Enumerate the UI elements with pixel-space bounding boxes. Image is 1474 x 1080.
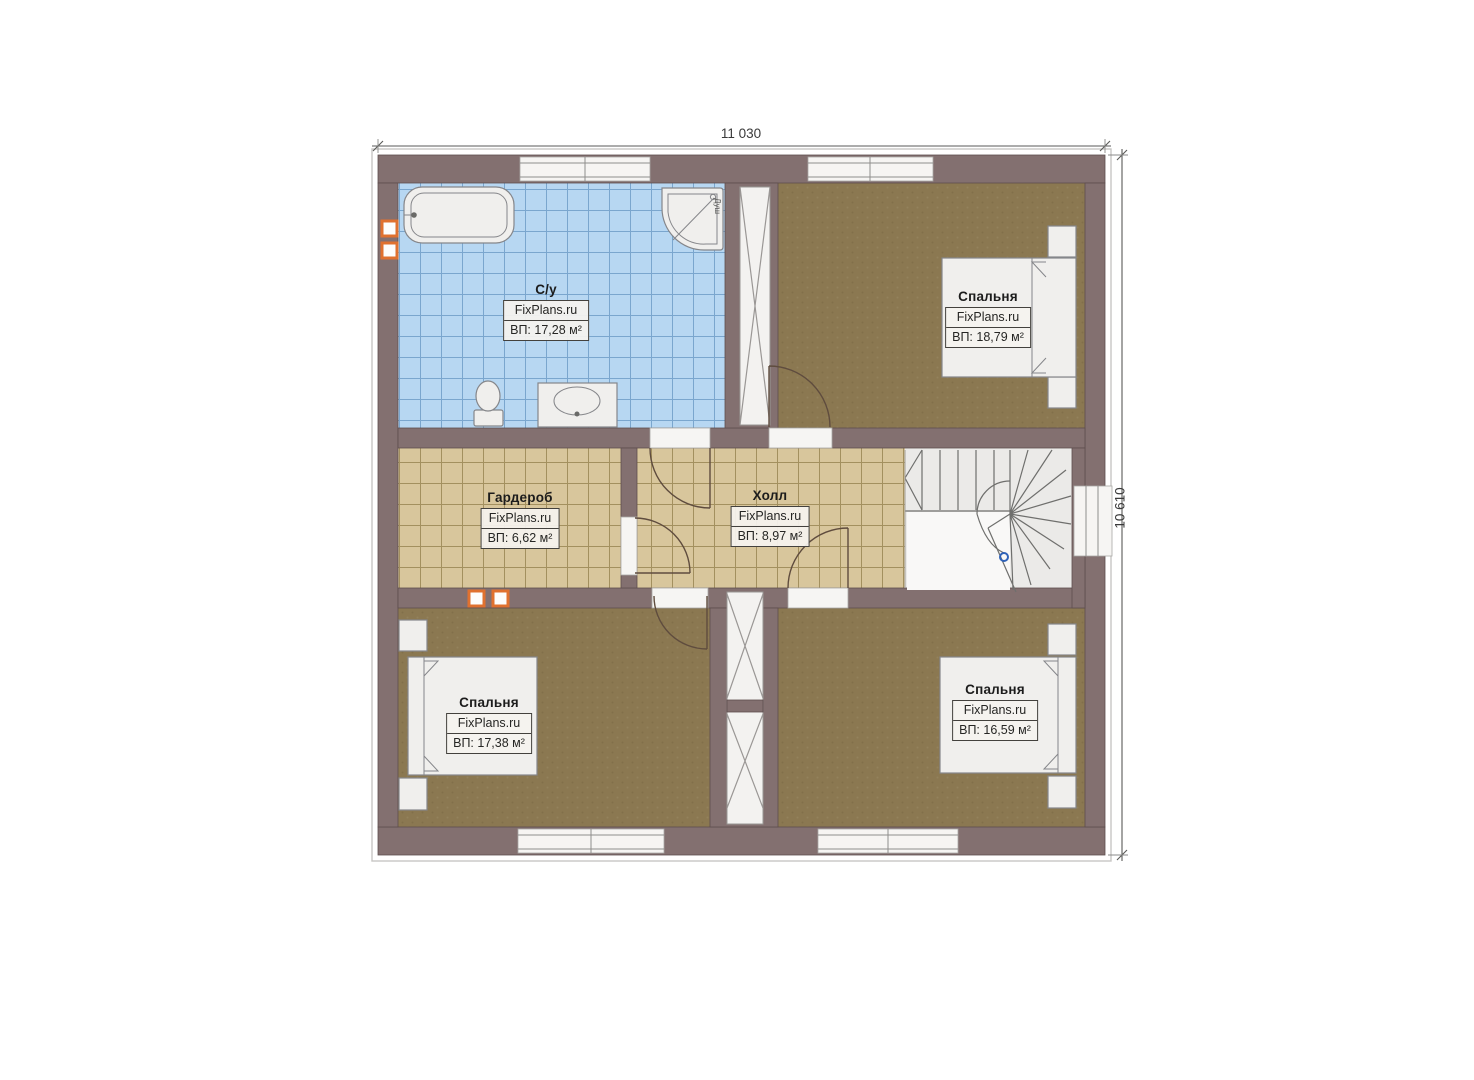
room-label-hall: Холл FixPlans.ru ВП: 8,97 м² [731, 488, 810, 547]
wall-left [378, 183, 398, 827]
room-info-box: FixPlans.ru ВП: 6,62 м² [481, 508, 560, 549]
wall-bottom [378, 827, 1105, 855]
brand-label: FixPlans.ru [946, 308, 1030, 327]
window-stairs-right [1074, 486, 1112, 556]
room-name: Спальня [952, 682, 1038, 697]
shower-annotation: Душ [713, 198, 722, 214]
opening-bedroom-right [788, 588, 848, 608]
nightstand [1048, 776, 1076, 808]
vent-block [493, 591, 508, 606]
room-name: Спальня [945, 289, 1031, 304]
area-label: ВП: 17,28 м² [504, 320, 588, 340]
room-info-box: FixPlans.ru ВП: 16,59 м² [952, 700, 1038, 741]
opening-wardrobe [621, 517, 637, 575]
room-label-wardrobe: Гардероб FixPlans.ru ВП: 6,62 м² [481, 490, 560, 549]
nightstand [399, 620, 427, 651]
room-info-box: FixPlans.ru ВП: 18,79 м² [945, 307, 1031, 348]
room-info-box: FixPlans.ru ВП: 8,97 м² [731, 506, 810, 547]
brand-label: FixPlans.ru [504, 301, 588, 320]
nightstand [1048, 624, 1076, 655]
brand-label: FixPlans.ru [447, 714, 531, 733]
floor-plan-page: 11 030 10 610 С/у FixPlans.ru ВП: 17,28 … [0, 0, 1474, 1080]
area-label: ВП: 6,62 м² [482, 528, 559, 548]
window-bedroom-top [808, 157, 933, 181]
dimension-height-label: 10 610 [1113, 487, 1128, 528]
sink-vanity [538, 383, 617, 427]
area-label: ВП: 8,97 м² [732, 526, 809, 546]
window-bedroom-left-bottom [518, 829, 664, 853]
window-bedroom-right-bottom [818, 829, 958, 853]
nightstand [399, 778, 427, 810]
room-name: Холл [731, 488, 810, 503]
room-label-bathroom: С/у FixPlans.ru ВП: 17,28 м² [503, 282, 589, 341]
area-label: ВП: 16,59 м² [953, 720, 1037, 740]
room-name: С/у [503, 282, 589, 297]
brand-label: FixPlans.ru [953, 701, 1037, 720]
shaft-separator [727, 700, 763, 712]
opening-bedroom-top [769, 428, 832, 448]
vent-block [382, 221, 397, 236]
room-name: Гардероб [481, 490, 560, 505]
room-label-bedroom-left: Спальня FixPlans.ru ВП: 17,38 м² [446, 695, 532, 754]
opening-bathroom [650, 428, 710, 448]
brand-label: FixPlans.ru [732, 507, 809, 526]
wall-mid-upper [398, 428, 1085, 448]
bathtub [404, 187, 514, 243]
nightstand [1048, 226, 1076, 257]
room-info-box: FixPlans.ru ВП: 17,38 м² [446, 713, 532, 754]
toilet [474, 381, 503, 426]
nightstand [1048, 377, 1076, 408]
room-label-bedroom-top: Спальня FixPlans.ru ВП: 18,79 м² [945, 289, 1031, 348]
room-name: Спальня [446, 695, 532, 710]
dimension-width-label: 11 030 [721, 126, 761, 141]
vent-block [382, 243, 397, 258]
brand-label: FixPlans.ru [482, 509, 559, 528]
opening-bedroom-left [652, 588, 708, 608]
window-bathroom-top [520, 157, 650, 181]
room-info-box: FixPlans.ru ВП: 17,28 м² [503, 300, 589, 341]
vent-block [469, 591, 484, 606]
room-label-bedroom-right: Спальня FixPlans.ru ВП: 16,59 м² [952, 682, 1038, 741]
area-label: ВП: 18,79 м² [946, 327, 1030, 347]
area-label: ВП: 17,38 м² [447, 733, 531, 753]
wall-top [378, 155, 1105, 183]
